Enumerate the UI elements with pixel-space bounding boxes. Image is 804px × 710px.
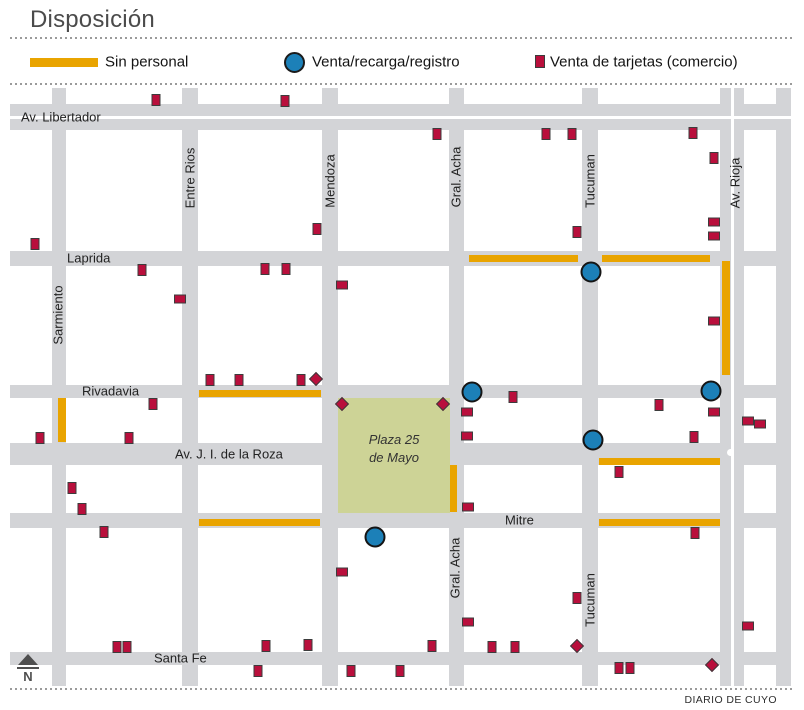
sale-point	[701, 381, 722, 402]
city-map: Av. LibertadorLapridaRivadaviaAv. J. I. …	[0, 0, 804, 710]
card-shop-marker	[396, 665, 405, 677]
street-label-mitre: Mitre	[505, 513, 534, 528]
card-shop-marker	[615, 662, 624, 674]
street-label-mendoza: Mendoza	[323, 154, 338, 207]
card-shop-marker	[297, 374, 306, 386]
card-shop-marker	[309, 372, 323, 386]
street-label-av-j-i-de-la-roza: Av. J. I. de la Roza	[175, 447, 283, 462]
sale-point	[581, 262, 602, 283]
card-shop-marker	[626, 662, 635, 674]
street-label-av-libertador: Av. Libertador	[21, 110, 101, 125]
street-sarmiento	[52, 88, 66, 686]
card-shop-marker	[282, 263, 291, 275]
no-staff-segment	[58, 398, 66, 442]
card-shop-marker	[710, 152, 719, 164]
no-staff-segment	[722, 261, 730, 375]
card-shop-marker	[304, 639, 313, 651]
credit: DIARIO DE CUYO	[684, 694, 777, 706]
card-shop-marker	[754, 420, 766, 429]
no-staff-segment	[450, 465, 457, 512]
street-label-laprida: Laprida	[67, 251, 110, 266]
card-shop-marker	[742, 622, 754, 631]
street-label-av-rioja: Av. Rioja	[728, 158, 743, 209]
street-label-gral-acha: Gral. Acha	[449, 147, 464, 208]
no-staff-segment	[469, 255, 578, 262]
compass-north: N	[17, 654, 39, 683]
card-shop-marker	[336, 568, 348, 577]
north-arrow-icon	[18, 654, 38, 665]
street-label-entre-rios: Entre Rios	[183, 148, 198, 209]
card-shop-marker	[708, 232, 720, 241]
card-shop-marker	[152, 94, 161, 106]
card-shop-marker	[125, 432, 134, 444]
compass-n-label: N	[17, 667, 39, 683]
sale-point	[462, 382, 483, 403]
card-shop-marker	[428, 640, 437, 652]
card-shop-marker	[261, 263, 270, 275]
card-shop-marker	[542, 128, 551, 140]
street-median-av-libertador	[10, 116, 791, 119]
card-shop-marker	[568, 128, 577, 140]
card-shop-marker	[149, 398, 158, 410]
card-shop-marker	[573, 226, 582, 238]
card-shop-marker	[708, 317, 720, 326]
card-shop-marker	[461, 432, 473, 441]
card-shop-marker	[347, 665, 356, 677]
card-shop-marker	[708, 218, 720, 227]
card-shop-marker	[511, 641, 520, 653]
card-shop-marker	[206, 374, 215, 386]
card-shop-marker	[78, 503, 87, 515]
card-shop-marker	[742, 417, 754, 426]
street-label-gral-acha: Gral. Acha	[448, 538, 463, 599]
street-label-santa-fe: Santa Fe	[154, 651, 207, 666]
card-shop-marker	[123, 641, 132, 653]
card-shop-marker	[689, 127, 698, 139]
card-shop-marker	[708, 408, 720, 417]
card-shop-marker	[281, 95, 290, 107]
street-unnamed	[776, 88, 791, 686]
no-staff-segment	[199, 390, 321, 397]
sale-point	[583, 430, 604, 451]
card-shop-marker	[313, 223, 322, 235]
dotted-divider-bottom	[10, 688, 794, 690]
street-label-rivadavia: Rivadavia	[82, 384, 139, 399]
card-shop-marker	[462, 618, 474, 627]
card-shop-marker	[488, 641, 497, 653]
card-shop-marker	[68, 482, 77, 494]
sale-point	[365, 527, 386, 548]
card-shop-marker	[573, 592, 582, 604]
plaza-label: Plaza 25 de Mayo	[369, 431, 420, 469]
card-shop-marker	[113, 641, 122, 653]
card-shop-marker	[690, 431, 699, 443]
no-staff-segment	[199, 519, 320, 526]
street-label-sarmiento: Sarmiento	[51, 285, 66, 344]
card-shop-marker	[36, 432, 45, 444]
card-shop-marker	[461, 408, 473, 417]
card-shop-marker	[262, 640, 271, 652]
card-shop-marker	[235, 374, 244, 386]
no-staff-segment	[602, 255, 710, 262]
card-shop-marker	[615, 466, 624, 478]
card-shop-marker	[254, 665, 263, 677]
card-shop-marker	[138, 264, 147, 276]
card-shop-marker	[433, 128, 442, 140]
card-shop-marker	[509, 391, 518, 403]
street-label-tucuman: Tucuman	[583, 573, 598, 627]
street-label-tucuman: Tucuman	[583, 154, 598, 208]
card-shop-marker	[100, 526, 109, 538]
infographic: Disposición Sin personal Venta/recarga/r…	[0, 0, 804, 710]
card-shop-marker	[655, 399, 664, 411]
card-shop-marker	[31, 238, 40, 250]
card-shop-marker	[336, 281, 348, 290]
roundabout	[727, 449, 734, 456]
no-staff-segment	[599, 458, 720, 465]
card-shop-marker	[174, 295, 186, 304]
no-staff-segment	[599, 519, 720, 526]
card-shop-marker	[691, 527, 700, 539]
card-shop-marker	[462, 503, 474, 512]
street-santa-fe	[10, 652, 791, 665]
